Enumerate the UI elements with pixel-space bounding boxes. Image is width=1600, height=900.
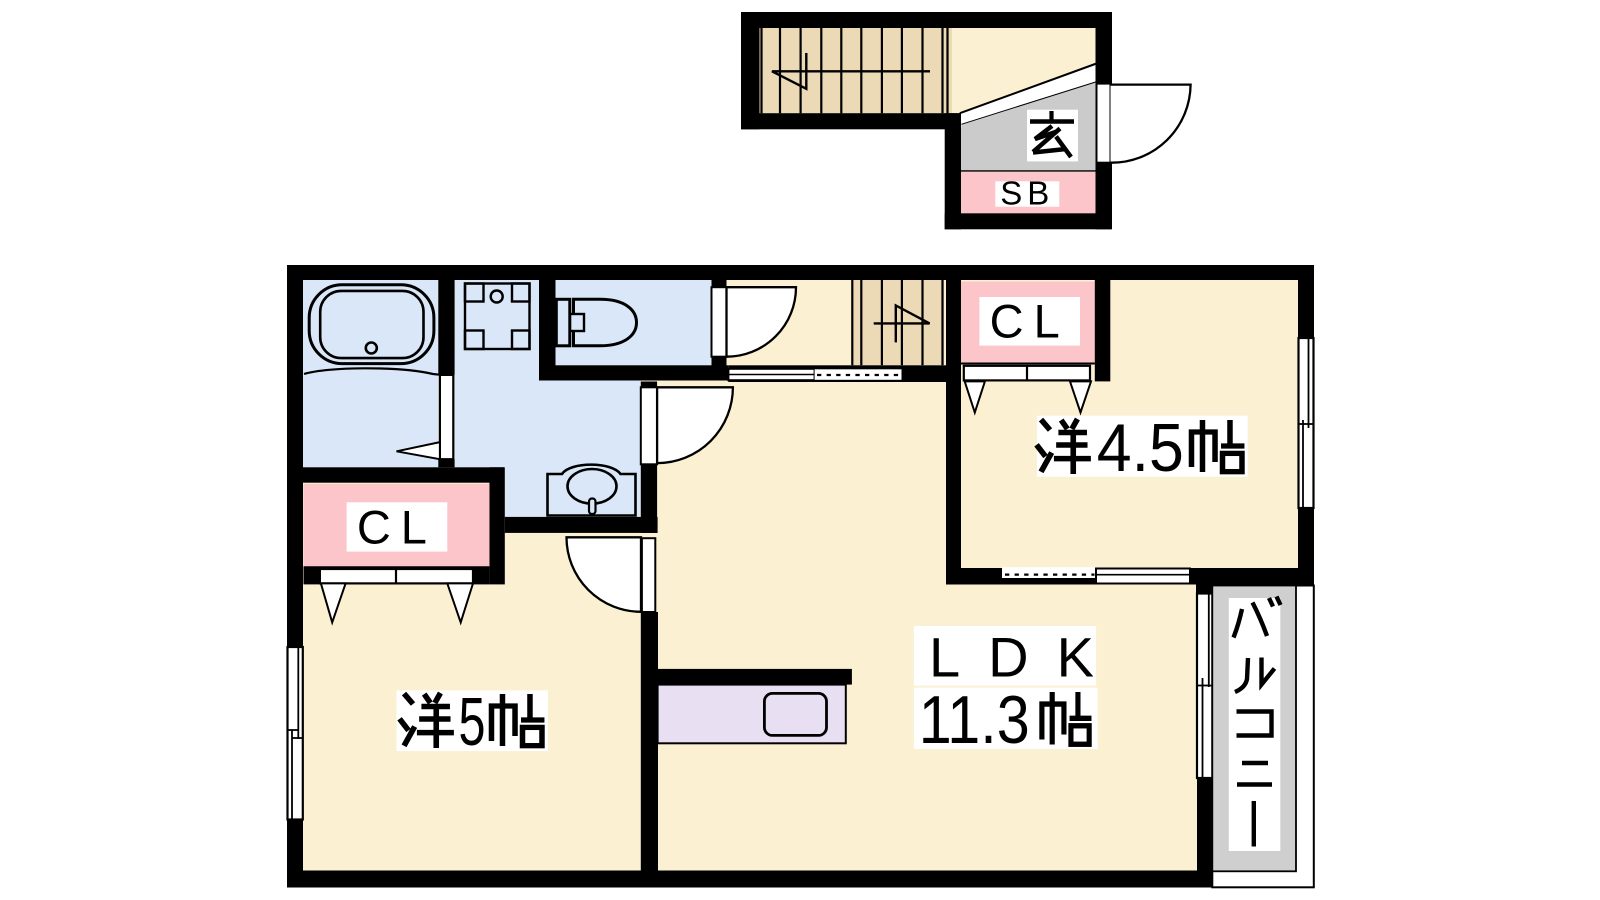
svg-text:SB: SB [1000, 175, 1054, 212]
svg-text:11.3: 11.3 [919, 682, 1030, 758]
svg-text:5: 5 [459, 684, 486, 760]
svg-text:4.5: 4.5 [1097, 410, 1184, 486]
svg-text:LDK: LDK [929, 626, 1122, 689]
svg-text:CL: CL [357, 501, 437, 554]
svg-text:CL: CL [990, 295, 1070, 348]
